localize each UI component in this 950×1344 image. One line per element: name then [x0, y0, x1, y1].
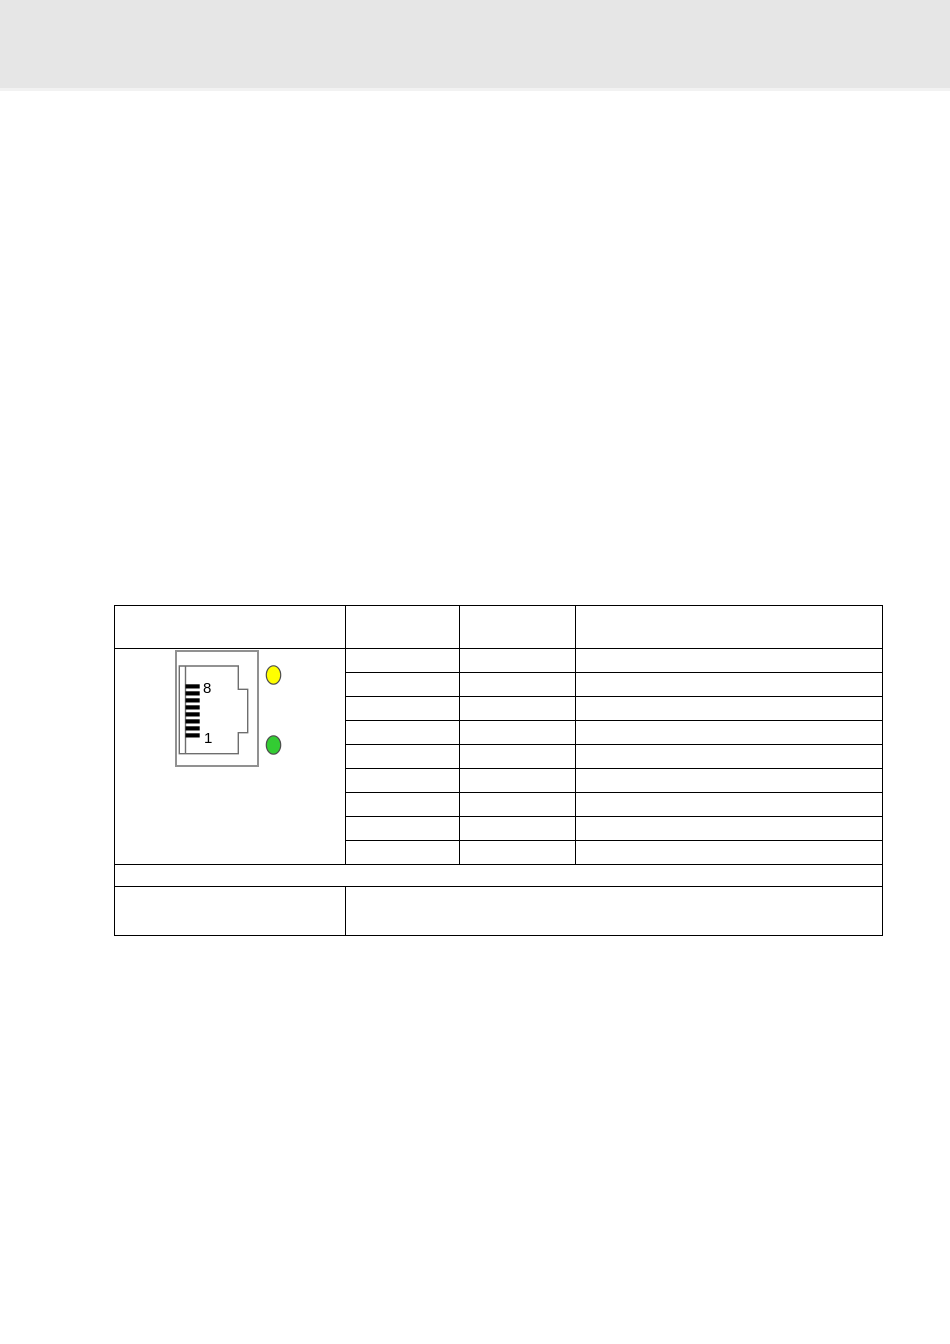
footer-value-cell	[346, 887, 883, 936]
pin-cell	[346, 697, 460, 721]
pin-cell	[346, 841, 460, 865]
pin-contact-bar	[186, 698, 200, 702]
pin-cell	[460, 841, 576, 865]
pin-cell	[576, 721, 883, 745]
note-row	[115, 865, 883, 887]
pin-cell	[576, 745, 883, 769]
pin-cell	[346, 649, 460, 673]
pin-contact-bar	[186, 705, 200, 709]
table-header-row	[115, 606, 883, 649]
pin-contact-bar	[186, 733, 200, 737]
pin-cell	[346, 817, 460, 841]
pin-cell	[346, 793, 460, 817]
pin-contact-bar	[186, 726, 200, 730]
pin-cell	[460, 721, 576, 745]
pin-cell	[460, 745, 576, 769]
connector-figure-cell: 8 1	[115, 649, 346, 865]
pin-contact-bar	[186, 691, 200, 695]
pin-cell	[460, 769, 576, 793]
pin-cell	[460, 649, 576, 673]
pin-cell	[346, 769, 460, 793]
pin-row: 8 1	[115, 649, 883, 673]
pin-contact-bar	[186, 712, 200, 716]
upper-led-indicator	[266, 666, 280, 684]
pin-cell	[346, 673, 460, 697]
pin-cell	[576, 817, 883, 841]
pin-cell	[576, 841, 883, 865]
pin-contact-bar	[186, 719, 200, 723]
pin-cell	[576, 793, 883, 817]
page-header-band	[0, 0, 950, 91]
pin-cell	[460, 817, 576, 841]
header-cell-col3	[460, 606, 576, 649]
connector-pin-table: 8 1	[114, 605, 883, 936]
pin-bottom-number-label: 1	[204, 730, 212, 747]
pin-cell	[576, 769, 883, 793]
pin-cell	[346, 721, 460, 745]
pin-cell	[576, 673, 883, 697]
pin-cell	[576, 697, 883, 721]
header-cell-col2	[346, 606, 460, 649]
pin-cell	[460, 673, 576, 697]
header-cell-col4	[576, 606, 883, 649]
header-cell-connector	[115, 606, 346, 649]
pin-cell	[346, 745, 460, 769]
pin-contact-bar	[186, 684, 200, 688]
footer-label-cell	[115, 887, 346, 936]
note-cell	[115, 865, 883, 887]
lower-led-indicator	[266, 736, 280, 754]
pin-cell	[460, 697, 576, 721]
jack-opening-profile-icon	[179, 666, 247, 754]
pin-top-number-label: 8	[203, 680, 211, 697]
document-page: 8 1	[0, 0, 950, 1344]
rj45-jack-figure: 8 1	[115, 649, 344, 863]
pin-cell	[576, 649, 883, 673]
footer-row	[115, 887, 883, 936]
pin-cell	[460, 793, 576, 817]
